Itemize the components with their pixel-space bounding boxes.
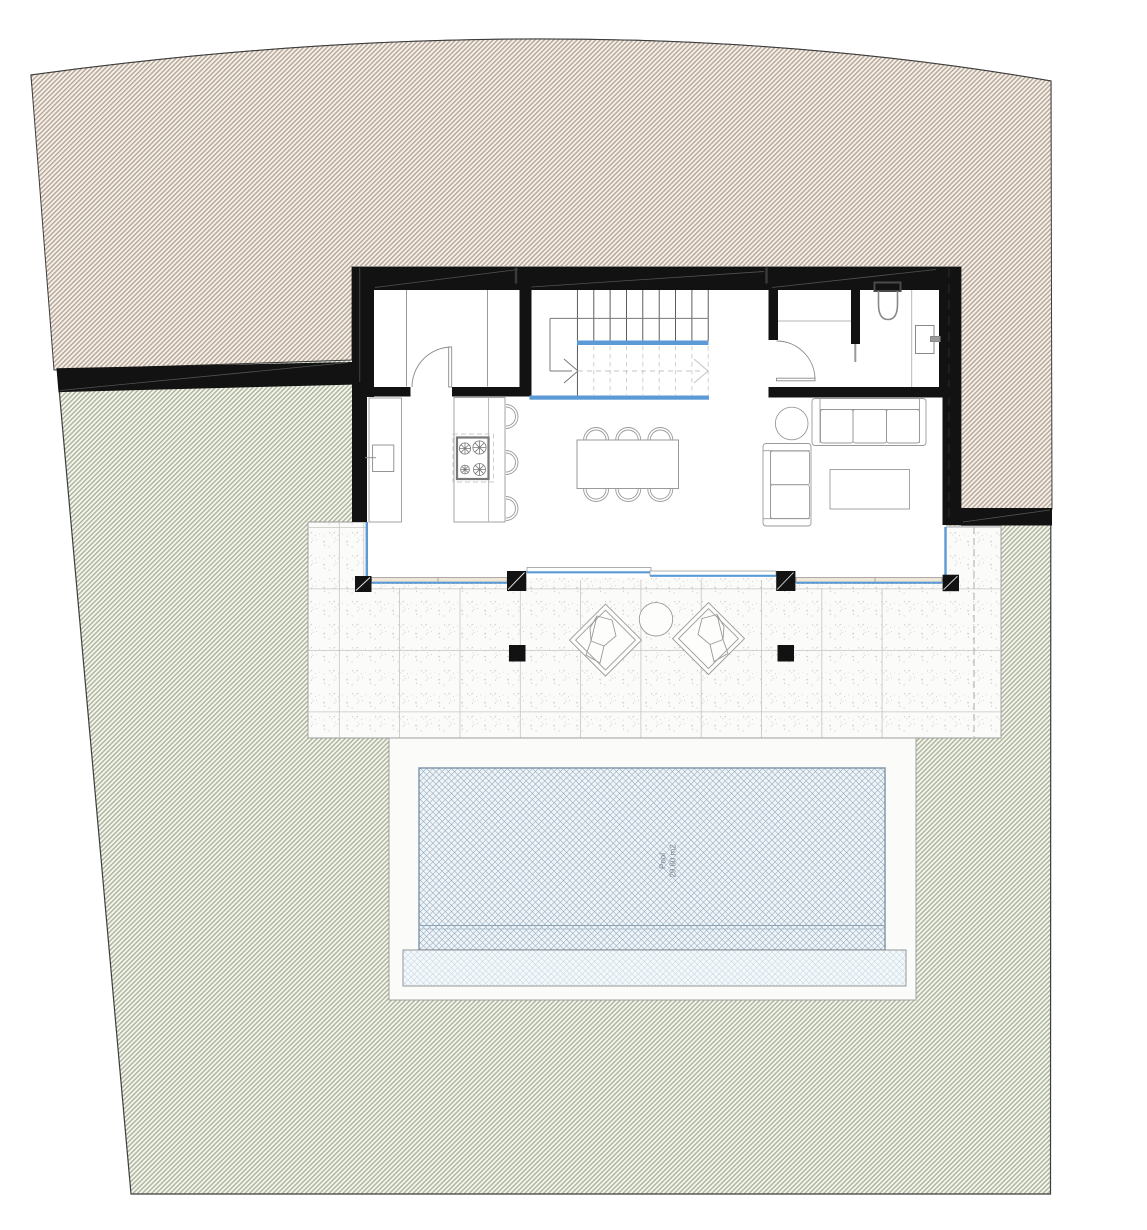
svg-text:Pool: Pool (659, 853, 668, 869)
svg-text:29.60 m2: 29.60 m2 (669, 844, 678, 878)
